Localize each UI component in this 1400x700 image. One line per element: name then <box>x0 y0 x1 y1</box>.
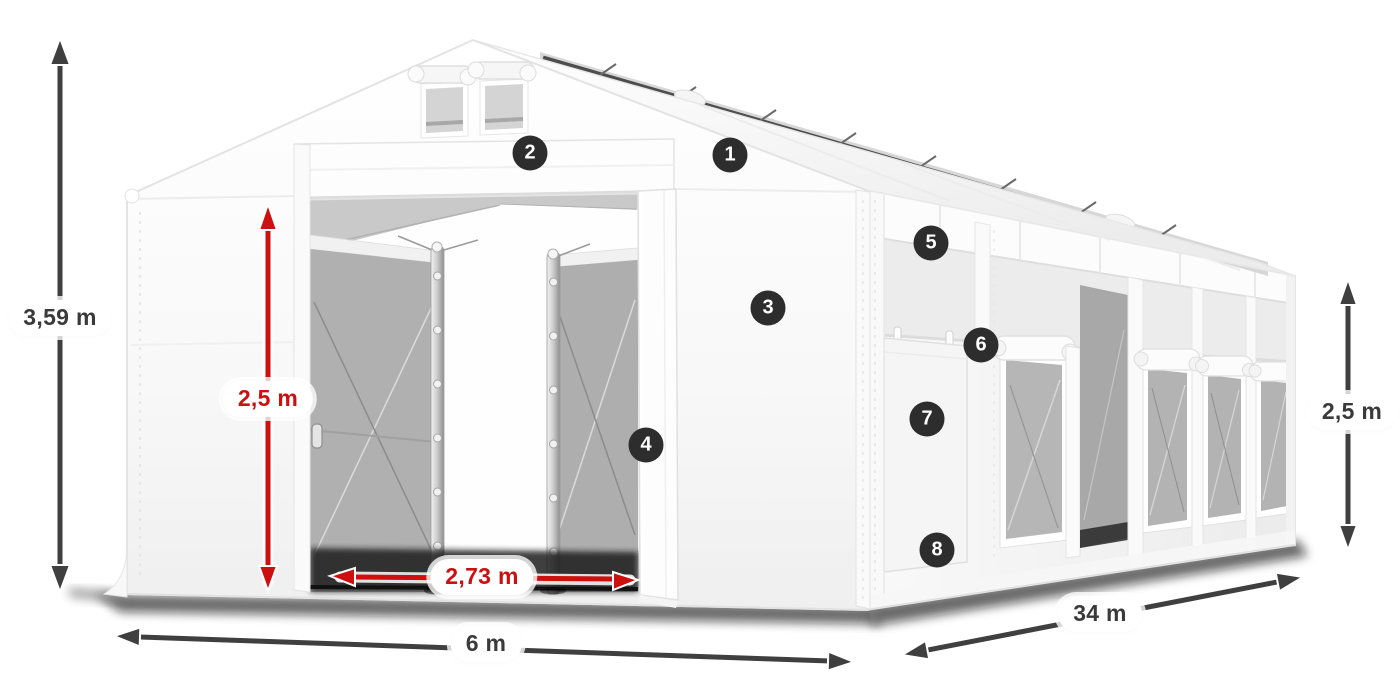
tent-illustration <box>0 0 1400 700</box>
callout-4-sliding-door: 4 <box>629 428 664 463</box>
door-width-label: 2,73 m <box>430 559 533 595</box>
length-label: 34 m <box>1058 596 1142 632</box>
callout-2-front-header: 2 <box>513 136 548 171</box>
callout-7-side-door: 7 <box>910 402 945 437</box>
callout-5-side-upper-panel: 5 <box>914 226 949 261</box>
side-height-label: 2,5 m <box>1307 394 1397 430</box>
front-door-opening <box>308 193 638 595</box>
callout-6-window-roll: 6 <box>964 328 999 363</box>
door-height-label: 2,5 m <box>223 381 313 417</box>
callout-3-front-wall: 3 <box>751 291 786 326</box>
tent-dimension-diagram: 3,59 m 2,5 m 2,73 m 6 m 34 m 2,5 m 1 2 3… <box>0 0 1400 700</box>
width-label: 6 m <box>451 626 522 662</box>
callout-1-roof: 1 <box>713 138 748 173</box>
callout-8-side-door-bottom: 8 <box>920 533 955 568</box>
total-height-label: 3,59 m <box>8 300 111 336</box>
